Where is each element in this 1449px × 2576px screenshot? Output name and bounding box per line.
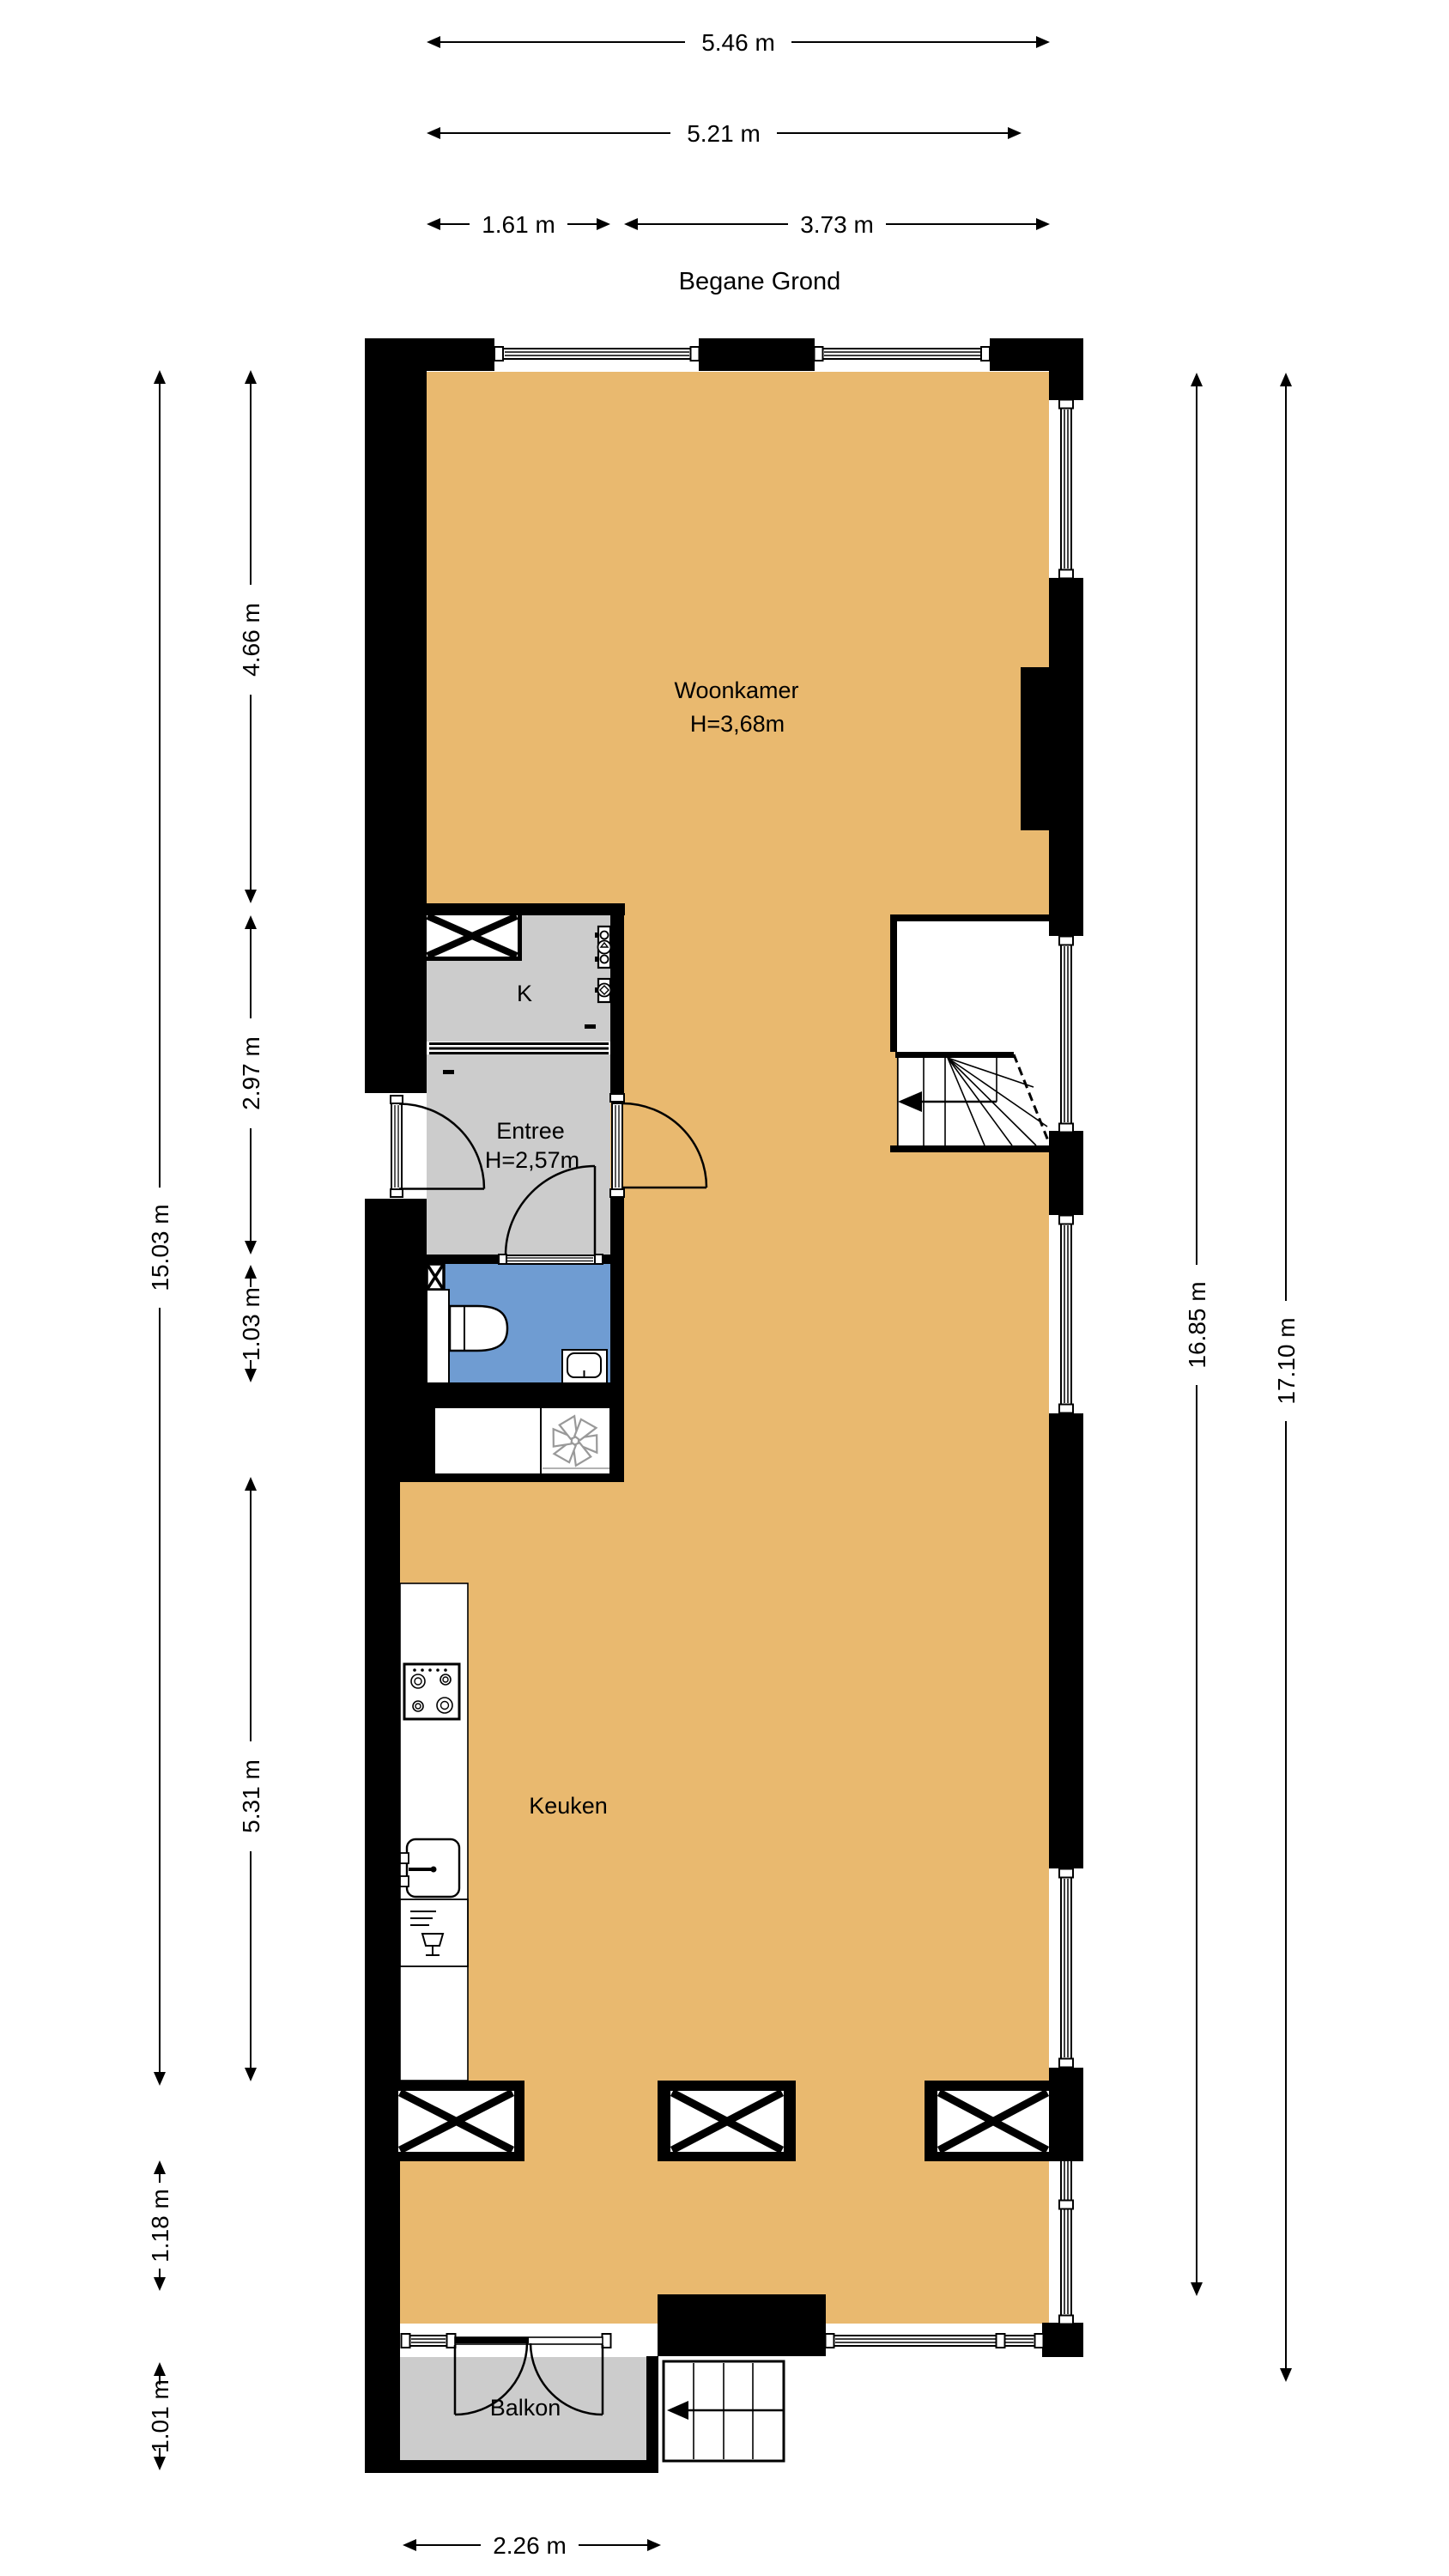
svg-text:K: K — [517, 981, 532, 1006]
svg-text:Entree: Entree — [496, 1118, 565, 1144]
svg-text:1.61 m: 1.61 m — [482, 211, 555, 238]
svg-text:5.21 m: 5.21 m — [687, 120, 761, 147]
svg-text:1.01 m: 1.01 m — [147, 2379, 173, 2453]
svg-text:Keuken: Keuken — [529, 1793, 608, 1819]
svg-text:Begane Grond: Begane Grond — [679, 268, 841, 295]
svg-text:16.85 m: 16.85 m — [1184, 1281, 1210, 1368]
svg-text:1.18 m: 1.18 m — [147, 2189, 173, 2263]
svg-text:1.03 m: 1.03 m — [238, 1287, 264, 1361]
svg-text:5.31 m: 5.31 m — [238, 1759, 264, 1833]
svg-text:2.26 m: 2.26 m — [493, 2532, 567, 2559]
svg-text:15.03 m: 15.03 m — [147, 1204, 173, 1291]
svg-text:2.97 m: 2.97 m — [238, 1036, 264, 1110]
svg-text:17.10 m: 17.10 m — [1273, 1317, 1300, 1404]
svg-text:Woonkamer: Woonkamer — [674, 677, 798, 703]
svg-text:H=3,68m: H=3,68m — [690, 711, 785, 737]
svg-text:H=2,57m: H=2,57m — [485, 1147, 579, 1173]
svg-text:5.46 m: 5.46 m — [701, 29, 775, 56]
svg-text:3.73 m: 3.73 m — [800, 211, 874, 238]
svg-text:4.66 m: 4.66 m — [238, 603, 264, 677]
svg-text:Balkon: Balkon — [490, 2395, 561, 2421]
